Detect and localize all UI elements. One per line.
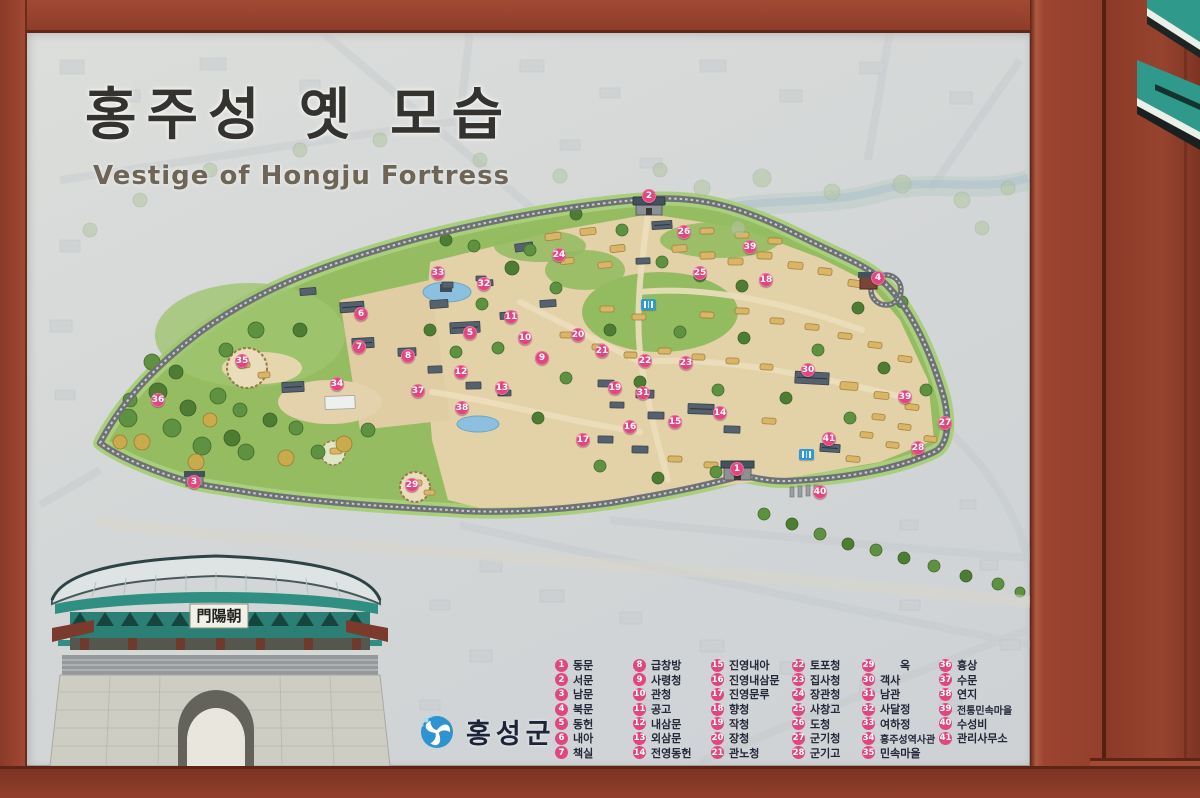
hongseong-logo: 홍성군 (418, 712, 556, 751)
map-marker-40: 40 (813, 485, 827, 499)
map-marker-20: 20 (571, 328, 585, 342)
restroom-icon (799, 449, 814, 460)
sign-board: 門陽朝 (25, 30, 1030, 766)
sign-frame-top (0, 0, 1200, 33)
map-marker-36: 36 (151, 393, 165, 407)
hongseong-logo-text: 홍성군 (466, 712, 556, 751)
map-marker-34: 34 (330, 377, 344, 391)
map-marker-30: 30 (801, 363, 815, 377)
map-marker-4: 4 (871, 271, 885, 285)
map-marker-11: 11 (504, 310, 518, 324)
map-marker-41: 41 (822, 432, 836, 446)
map-marker-16: 16 (623, 420, 637, 434)
map-marker-35: 35 (235, 354, 249, 368)
map-marker-33: 33 (431, 266, 445, 280)
markers-layer: 1234567891011121314151617181920212223242… (25, 30, 1030, 766)
map-marker-12: 12 (454, 365, 468, 379)
map-marker-38: 38 (455, 401, 469, 415)
map-marker-3: 3 (187, 475, 201, 489)
restroom-icon (641, 299, 656, 310)
sign-frame-bottom (0, 766, 1200, 798)
map-marker-26: 26 (677, 225, 691, 239)
map-marker-13: 13 (495, 381, 509, 395)
dancheong-eaves (1125, 0, 1200, 180)
map-marker-6: 6 (354, 307, 368, 321)
map-marker-21: 21 (595, 344, 609, 358)
map-marker-5: 5 (463, 326, 477, 340)
map-marker-15: 15 (668, 415, 682, 429)
map-marker-28: 28 (911, 441, 925, 455)
map-marker-32: 32 (477, 277, 491, 291)
map-marker-10: 10 (518, 331, 532, 345)
map-marker-31: 31 (636, 386, 650, 400)
map-marker-7: 7 (352, 340, 366, 354)
map-marker-24: 24 (552, 248, 566, 262)
map-marker-8: 8 (401, 349, 415, 363)
map-marker-18: 18 (759, 273, 773, 287)
map-marker-39: 39 (743, 240, 757, 254)
map-marker-19: 19 (608, 381, 622, 395)
sign-frame-left (0, 0, 27, 798)
map-marker-25: 25 (693, 266, 707, 280)
map-marker-23: 23 (679, 356, 693, 370)
hongseong-logo-mark (418, 713, 456, 751)
map-marker-37: 37 (411, 384, 425, 398)
map-marker-1: 1 (730, 462, 744, 476)
map-marker-17: 17 (576, 433, 590, 447)
map-marker-22: 22 (638, 354, 652, 368)
map-marker-2: 2 (642, 189, 656, 203)
map-marker-29: 29 (405, 478, 419, 492)
map-marker-27: 27 (938, 416, 952, 430)
photograph-of-sign: 門陽朝 (0, 0, 1200, 798)
map-marker-39: 39 (898, 390, 912, 404)
map-marker-14: 14 (713, 406, 727, 420)
map-marker-9: 9 (535, 351, 549, 365)
sign-frame-right-post (1030, 0, 1106, 798)
